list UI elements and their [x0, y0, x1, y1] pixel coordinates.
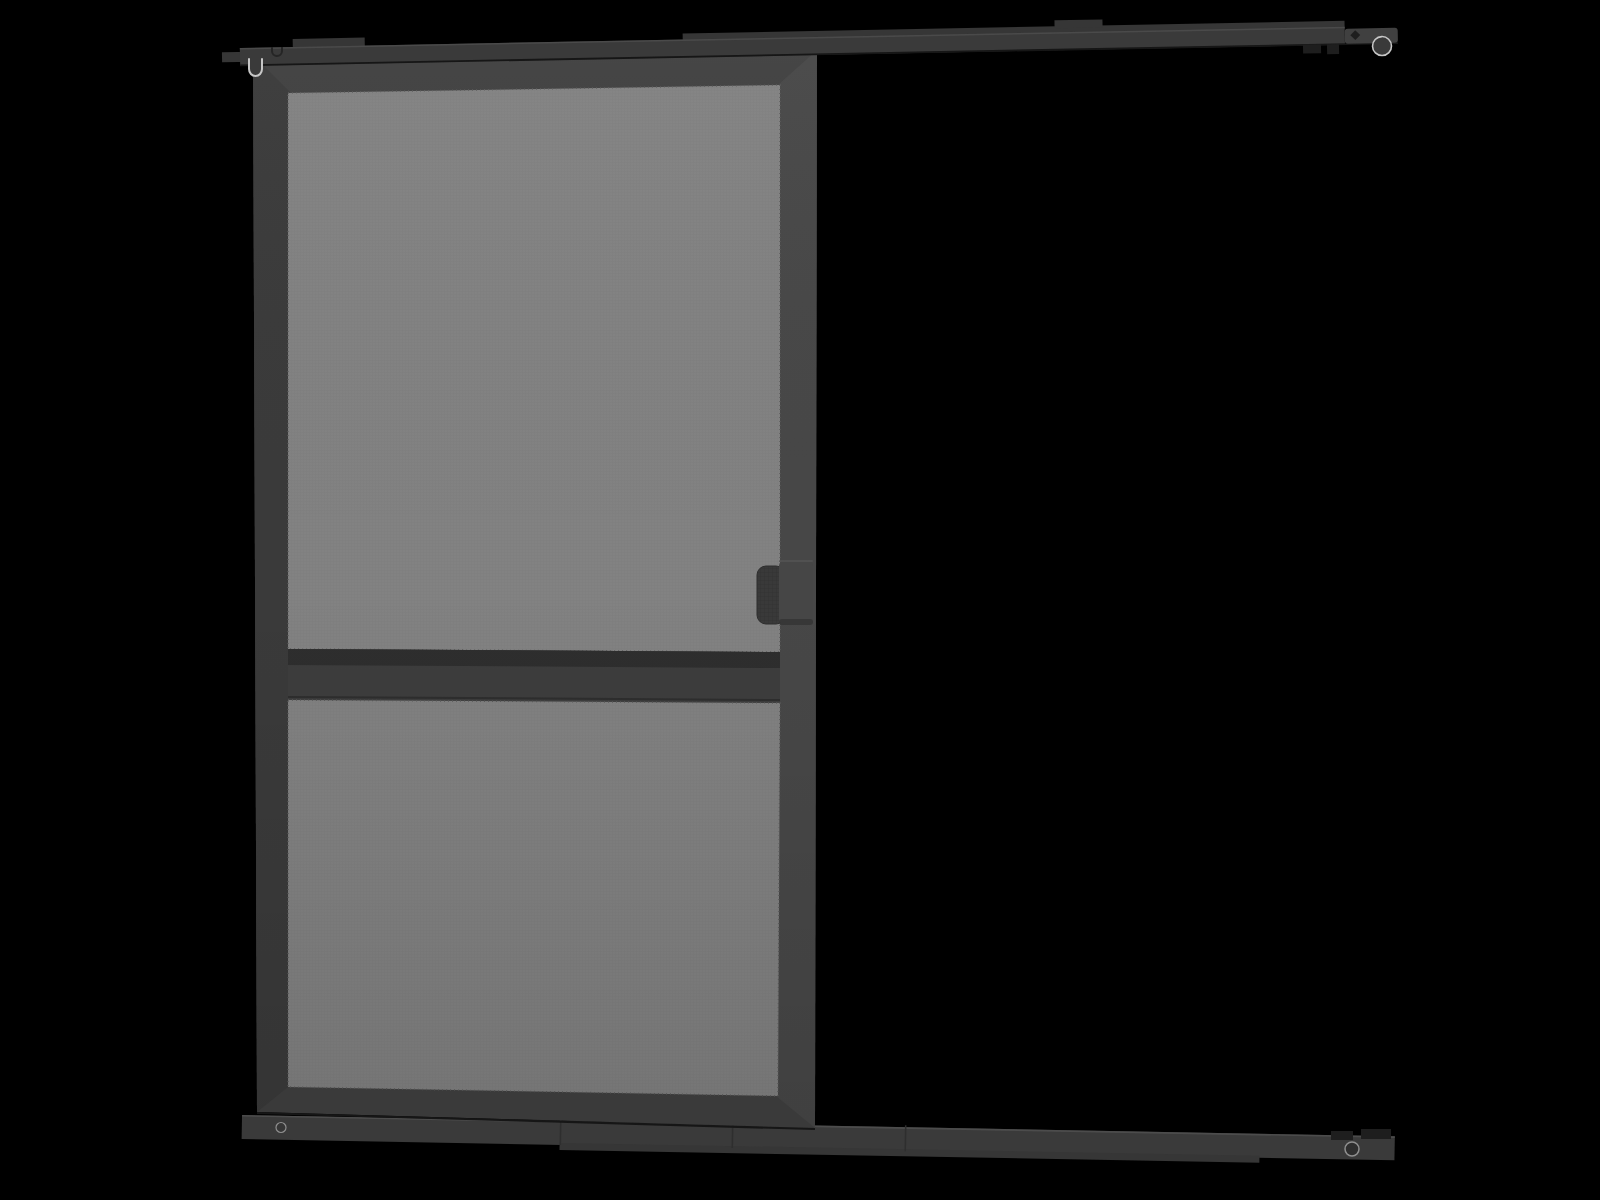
- product-render-stage: [0, 0, 1600, 1200]
- bottom-track-screw-right: [1345, 1142, 1359, 1156]
- handle-highlight: [779, 560, 813, 562]
- handle-bottom-shadow: [779, 619, 813, 625]
- roller-hanger-hook: [249, 59, 262, 76]
- bottom-track-clip: [1331, 1131, 1353, 1140]
- bottom-track-rail: [242, 1113, 1395, 1165]
- top-track-bracket: [1327, 44, 1339, 54]
- handle-plate: [779, 560, 813, 625]
- screen-door-render: [0, 0, 1600, 1200]
- door-handle: [757, 560, 813, 625]
- bottom-track-screw-left: [276, 1123, 286, 1133]
- door-shading: [253, 42, 817, 1128]
- top-track-end-roller: [1372, 36, 1391, 55]
- top-track-bracket: [1303, 44, 1321, 53]
- bottom-track-clip: [1361, 1129, 1391, 1139]
- screen-door-panel: [253, 42, 817, 1128]
- top-track-tab: [1054, 19, 1102, 28]
